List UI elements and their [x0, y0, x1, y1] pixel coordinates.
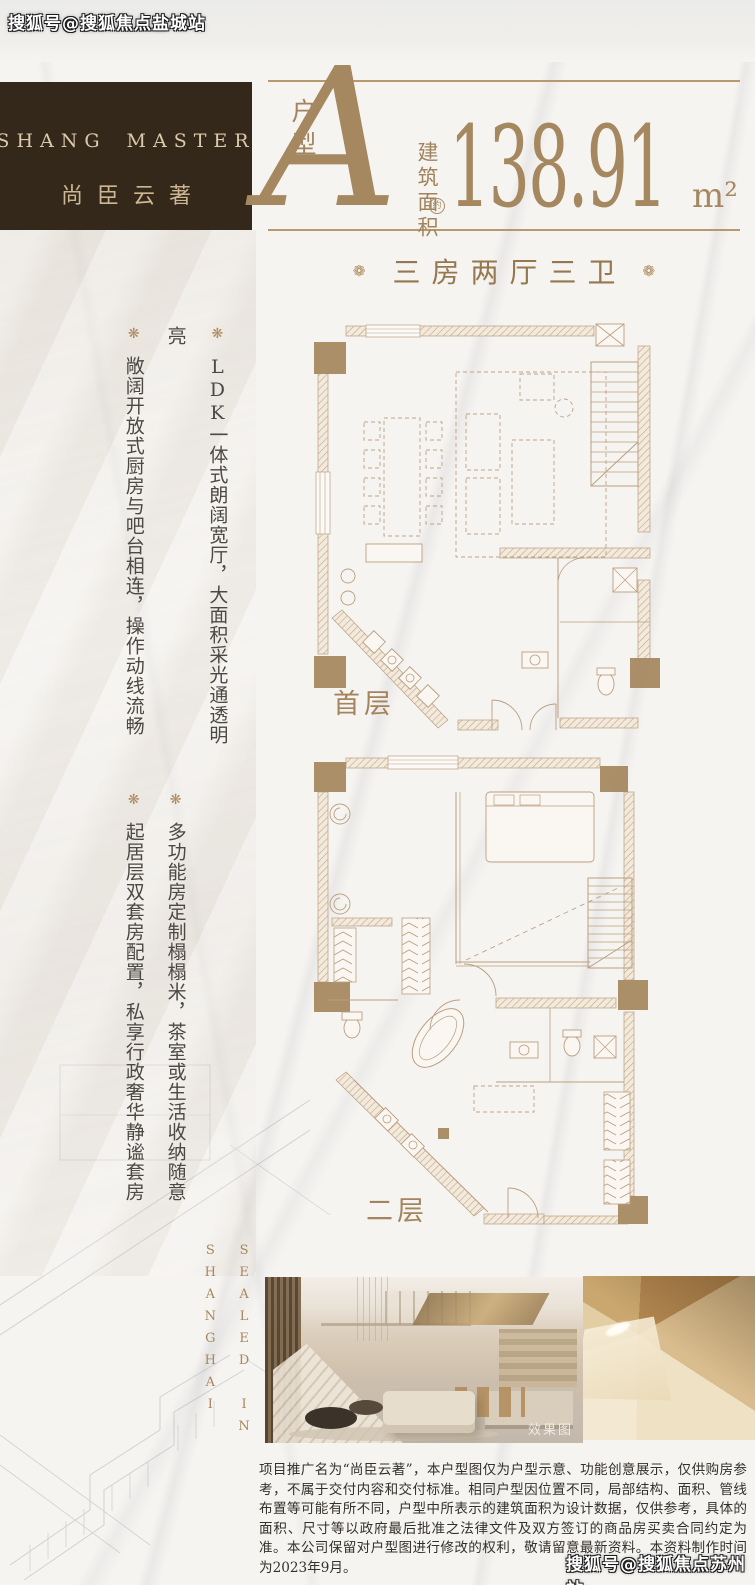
side-caption-line2: SHANGHAI: [193, 1243, 227, 1453]
area-unit: m²: [692, 176, 738, 216]
brand-name-cn: 尚臣云著: [0, 178, 252, 210]
second-floor-label: 二层: [366, 1189, 428, 1228]
flower-ornament-icon: ❁: [643, 262, 656, 280]
feature-item: ❋敞阔开放式厨房与吧台相连，操作动线流畅: [112, 326, 154, 750]
asterisk-ornament-icon: ❋: [126, 326, 142, 342]
side-table: [349, 1400, 383, 1415]
coffee-table: [305, 1407, 357, 1429]
side-caption: SEALED IN SHANGHAI: [193, 1243, 261, 1453]
feature-item: ❋起居层双套房配置，私享行政奢华静谧套房: [112, 792, 154, 1232]
brand-box: SHANG MASTER 尚臣云著: [0, 82, 252, 230]
gold-ceiling: [412, 1293, 549, 1325]
asterisk-ornament-icon: ❋: [209, 326, 225, 342]
feature-item: ❋多功能房定制榻榻米，茶室或生活收纳随意: [154, 792, 196, 1232]
sofa: [383, 1391, 475, 1433]
first-floor-label: 首层: [333, 682, 395, 721]
feature-text: LDK一体式朗阔宽厅，大面积采光通透明亮: [165, 326, 229, 745]
approx-badge: 约: [429, 198, 445, 214]
feature-group-2: ❋多功能房定制榻榻米，茶室或生活收纳随意 ❋起居层双套房配置，私享行政奢华静谧套…: [112, 792, 196, 1232]
brand-name-right: MASTER: [127, 130, 252, 152]
unit-type-letter: A: [260, 44, 399, 236]
crystal-facet: [583, 1291, 702, 1440]
layout-row: ❁ 三房两厅三卫 ❁: [268, 251, 740, 291]
area-value: 138.91: [449, 112, 666, 224]
brand-name-left: SHANG: [0, 130, 107, 152]
gold-crystal-photo: [583, 1276, 755, 1440]
first-floor-plan: [308, 322, 660, 737]
second-floor-plan: [288, 750, 666, 1232]
asterisk-ornament-icon: ❋: [168, 792, 184, 808]
area-label: 建筑面积: [412, 141, 442, 241]
render-caption: 效果图: [528, 1419, 573, 1438]
brand-row: SHANG MASTER: [0, 118, 252, 164]
watermark-bottom-right: 搜狐号@搜狐焦点苏州站: [566, 1550, 755, 1585]
feature-item: ❋LDK一体式朗阔宽厅，大面积采光通透明亮: [154, 326, 238, 750]
layout-text: 三房两厅三卫: [381, 251, 626, 291]
feature-text: 多功能房定制榻榻米，茶室或生活收纳随意: [165, 822, 187, 1202]
feature-group-1: ❋LDK一体式朗阔宽厅，大面积采光通透明亮 ❋敞阔开放式厨房与吧台相连，操作动线…: [112, 326, 237, 750]
interior-render-photo: 效果图: [265, 1277, 583, 1443]
side-caption-line1: SEALED IN: [227, 1243, 261, 1453]
watermark-top-left: 搜狐号@搜狐焦点盐城站: [8, 9, 206, 34]
poster-page: 搜狐号@搜狐焦点盐城站 SHANG MASTER 尚臣云著 户型 A 建筑面积 …: [0, 0, 755, 1585]
feature-text: 敞阔开放式厨房与吧台相连，操作动线流畅: [123, 356, 145, 736]
feature-text: 起居层双套房配置，私享行政奢华静谧套房: [123, 822, 145, 1202]
flower-ornament-icon: ❁: [353, 262, 366, 280]
asterisk-ornament-icon: ❋: [126, 792, 142, 808]
bar-shelves: [499, 1329, 577, 1387]
